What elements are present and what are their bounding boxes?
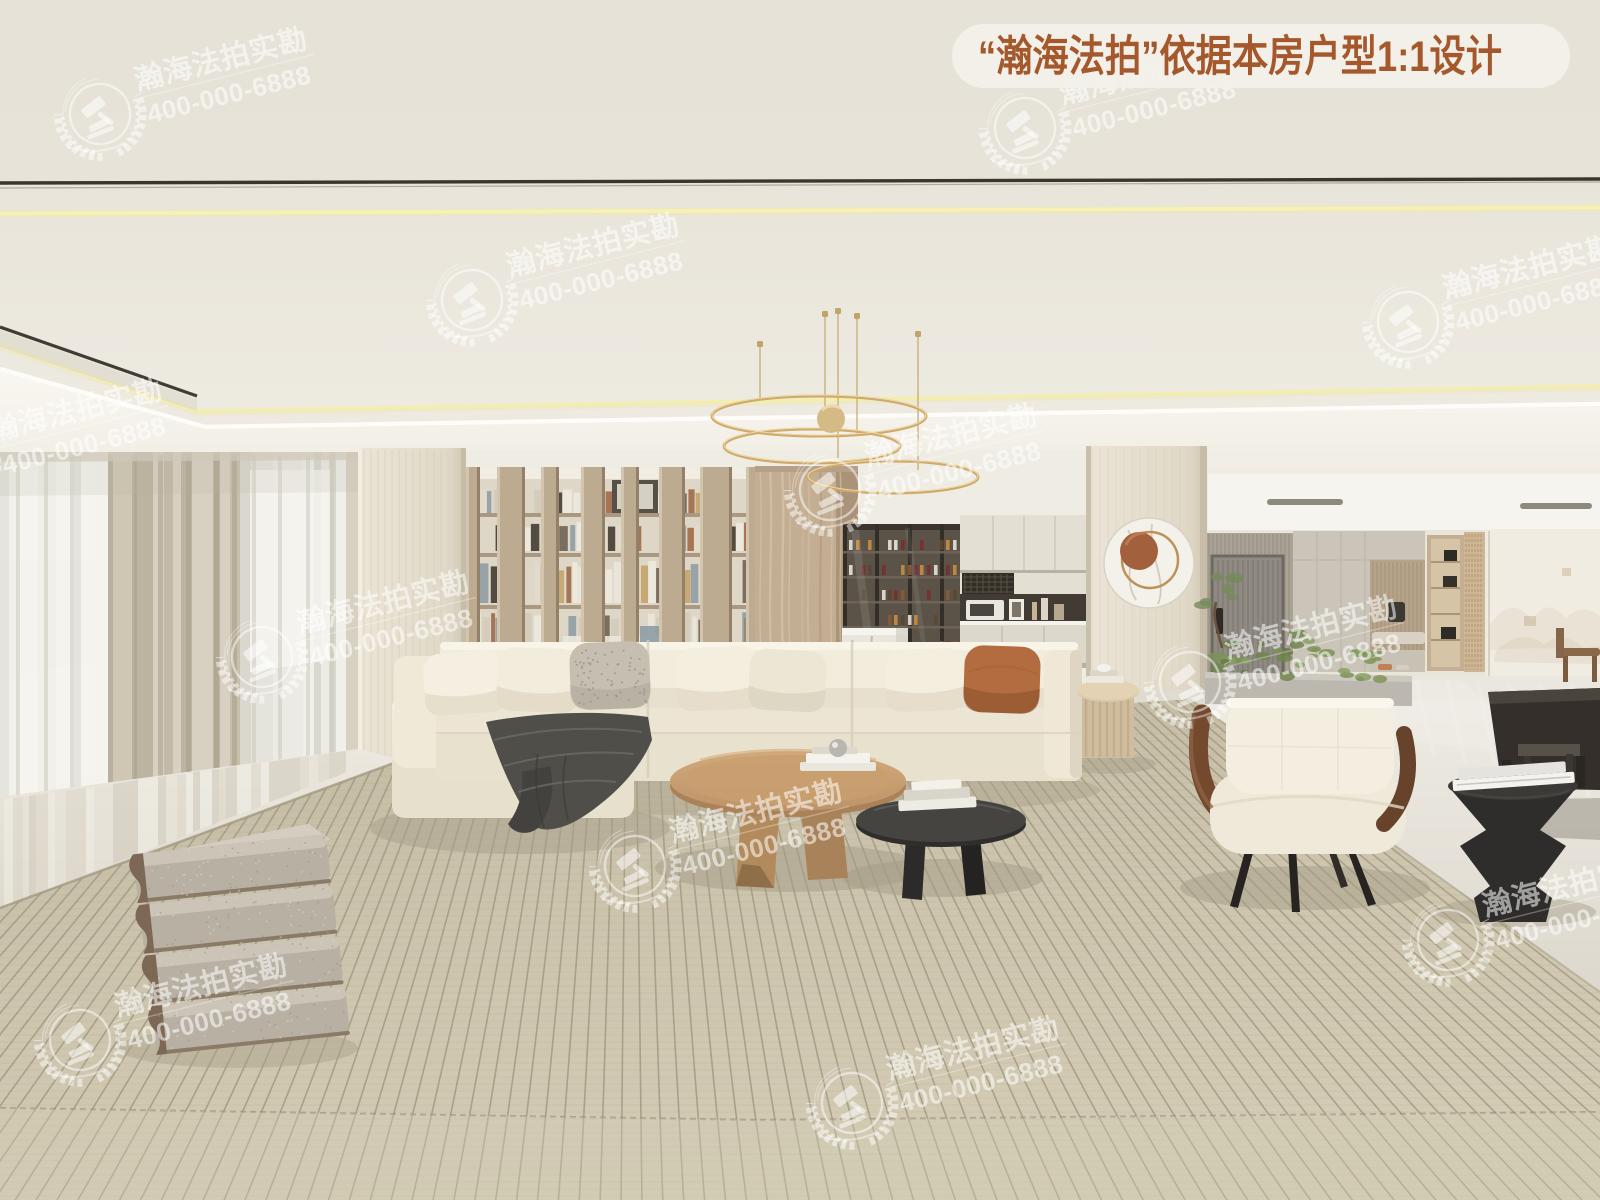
svg-text:“瀚海法拍”依据本房户型1:1设计: “瀚海法拍”依据本房户型1:1设计 xyxy=(978,33,1502,81)
